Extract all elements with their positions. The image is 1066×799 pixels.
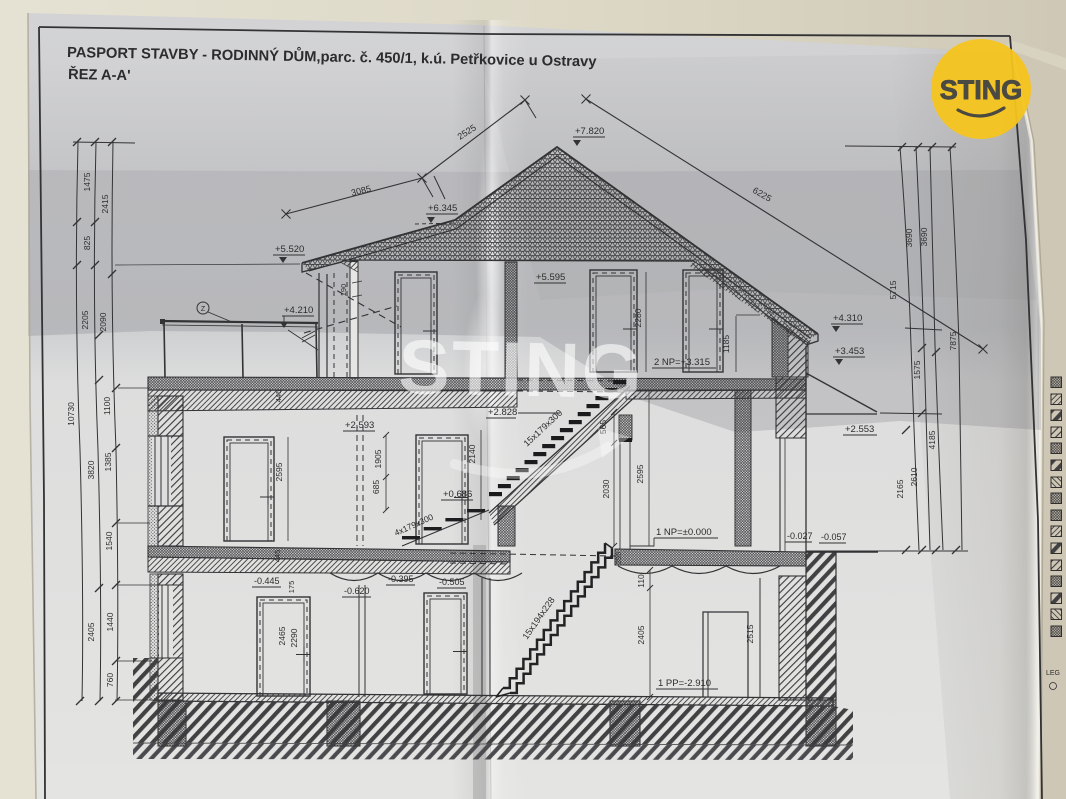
svg-text:1100: 1100 bbox=[102, 397, 112, 416]
svg-text:3690: 3690 bbox=[904, 228, 914, 247]
svg-text:1575: 1575 bbox=[912, 360, 922, 379]
svg-text:+5.595: +5.595 bbox=[536, 272, 565, 283]
svg-text:+4.210: +4.210 bbox=[284, 305, 313, 316]
svg-text:3820: 3820 bbox=[86, 460, 96, 479]
svg-text:STING: STING bbox=[398, 324, 645, 416]
svg-text:Z: Z bbox=[201, 306, 206, 313]
svg-text:190: 190 bbox=[339, 284, 348, 297]
svg-text:2515: 2515 bbox=[745, 624, 755, 643]
svg-text:1 PP=-2.910: 1 PP=-2.910 bbox=[658, 678, 711, 689]
svg-text:-0.057: -0.057 bbox=[821, 532, 847, 542]
svg-text:LEG: LEG bbox=[1046, 670, 1060, 677]
svg-text:4185: 4185 bbox=[927, 430, 937, 449]
svg-text:175: 175 bbox=[287, 581, 296, 594]
svg-text:+0.686: +0.686 bbox=[443, 489, 472, 500]
svg-text:ŘEZ A-A': ŘEZ A-A' bbox=[68, 65, 131, 84]
svg-text:685: 685 bbox=[371, 480, 381, 494]
svg-text:1905: 1905 bbox=[373, 449, 383, 468]
svg-text:2415: 2415 bbox=[100, 194, 110, 213]
svg-text:STING: STING bbox=[940, 75, 1023, 105]
svg-text:445: 445 bbox=[274, 390, 283, 403]
svg-text:2280: 2280 bbox=[633, 308, 643, 327]
svg-text:395: 395 bbox=[614, 552, 623, 565]
svg-text:445: 445 bbox=[273, 550, 282, 563]
svg-text:1385: 1385 bbox=[103, 452, 113, 471]
svg-text:2165: 2165 bbox=[895, 479, 905, 498]
svg-text:2405: 2405 bbox=[86, 622, 96, 641]
svg-text:2465: 2465 bbox=[277, 626, 287, 645]
svg-text:+4.310: +4.310 bbox=[833, 313, 862, 324]
svg-text:+2.593: +2.593 bbox=[345, 420, 374, 431]
svg-text:3690: 3690 bbox=[919, 227, 929, 246]
svg-text:+7.820: +7.820 bbox=[575, 126, 604, 137]
svg-text:1440: 1440 bbox=[105, 612, 115, 631]
svg-text:-0.027: -0.027 bbox=[787, 531, 813, 541]
svg-text:2140: 2140 bbox=[467, 444, 477, 463]
svg-text:-0.445: -0.445 bbox=[254, 576, 280, 586]
svg-text:2405: 2405 bbox=[636, 625, 646, 644]
svg-text:825: 825 bbox=[82, 236, 92, 250]
svg-text:1185: 1185 bbox=[721, 335, 731, 354]
svg-text:2610: 2610 bbox=[909, 467, 919, 486]
svg-text:+2.553: +2.553 bbox=[845, 424, 874, 435]
svg-text:2030: 2030 bbox=[601, 479, 611, 498]
svg-text:2090: 2090 bbox=[98, 312, 108, 331]
svg-text:760: 760 bbox=[105, 673, 115, 687]
svg-text:2595: 2595 bbox=[274, 462, 284, 481]
svg-text:1475: 1475 bbox=[82, 172, 92, 191]
svg-text:2595: 2595 bbox=[635, 464, 645, 483]
svg-text:+6.345: +6.345 bbox=[428, 203, 457, 214]
svg-text:10730: 10730 bbox=[66, 402, 76, 426]
svg-text:-0.620: -0.620 bbox=[344, 586, 370, 596]
svg-text:+5.520: +5.520 bbox=[275, 244, 304, 255]
svg-text:-0.395: -0.395 bbox=[388, 574, 414, 584]
svg-text:1 NP=±0.000: 1 NP=±0.000 bbox=[656, 527, 712, 538]
svg-text:-0.505: -0.505 bbox=[439, 577, 465, 587]
svg-text:7875: 7875 bbox=[948, 331, 958, 350]
svg-text:2290: 2290 bbox=[289, 628, 299, 647]
svg-text:+3.453: +3.453 bbox=[835, 346, 864, 357]
svg-text:2205: 2205 bbox=[80, 310, 90, 329]
svg-text:110: 110 bbox=[636, 574, 646, 588]
svg-text:2 NP=+3.315: 2 NP=+3.315 bbox=[654, 357, 710, 368]
svg-text:1540: 1540 bbox=[104, 531, 114, 550]
